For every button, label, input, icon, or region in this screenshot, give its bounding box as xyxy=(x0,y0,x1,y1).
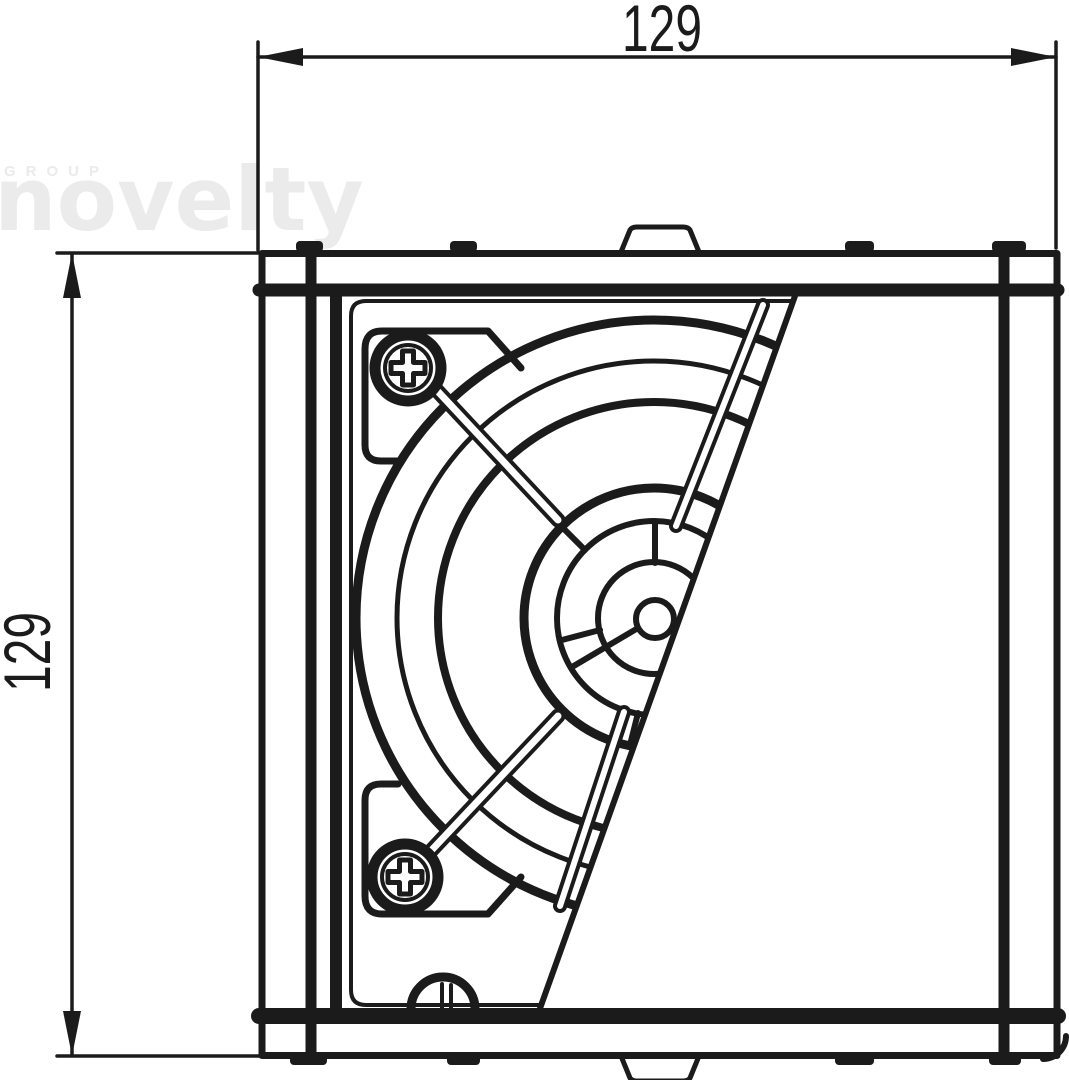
height-dimension-label: 129 xyxy=(0,612,64,692)
arrow-up-icon xyxy=(63,253,81,298)
grille-wires xyxy=(428,305,763,906)
wire-core xyxy=(430,383,558,520)
watermark-novelty-text: novelty xyxy=(0,148,364,251)
hub-center-circle xyxy=(636,600,674,638)
grille-rib xyxy=(562,630,600,640)
top-edge-bump xyxy=(296,241,323,252)
arrow-right-icon xyxy=(1011,48,1056,66)
fan-assembly xyxy=(356,305,952,916)
hub-spoke-lower-right xyxy=(672,628,737,664)
bottom-edge-bump xyxy=(989,1054,1021,1065)
fan-hub xyxy=(572,522,737,667)
height-dimension xyxy=(57,253,262,1056)
top-center-tab xyxy=(621,227,699,252)
technical-drawing-page: GROUP novelty xyxy=(0,0,1069,1080)
watermark: GROUP novelty xyxy=(0,148,364,251)
technical-drawing-canvas: GROUP novelty xyxy=(0,0,1069,1080)
grille-ribs xyxy=(479,430,638,745)
width-dimension xyxy=(258,42,1056,250)
bottom-edge-bump xyxy=(447,1054,480,1065)
wire-core xyxy=(428,716,558,854)
top-edge-bump xyxy=(992,241,1026,252)
phillips-screw-top-left xyxy=(375,335,441,401)
bottom-edge-bump xyxy=(835,1054,874,1065)
bottom-edge-bump xyxy=(290,1054,327,1065)
grille-rib xyxy=(562,527,585,550)
top-edge-bump xyxy=(845,241,874,252)
width-dimension-label: 129 xyxy=(622,0,702,65)
top-edge-bump xyxy=(450,241,477,252)
arrow-down-icon xyxy=(63,1011,81,1056)
bottom-center-tab xyxy=(621,1056,699,1080)
phillips-screw-bottom-left xyxy=(372,844,438,910)
arrow-left-icon xyxy=(258,48,303,66)
